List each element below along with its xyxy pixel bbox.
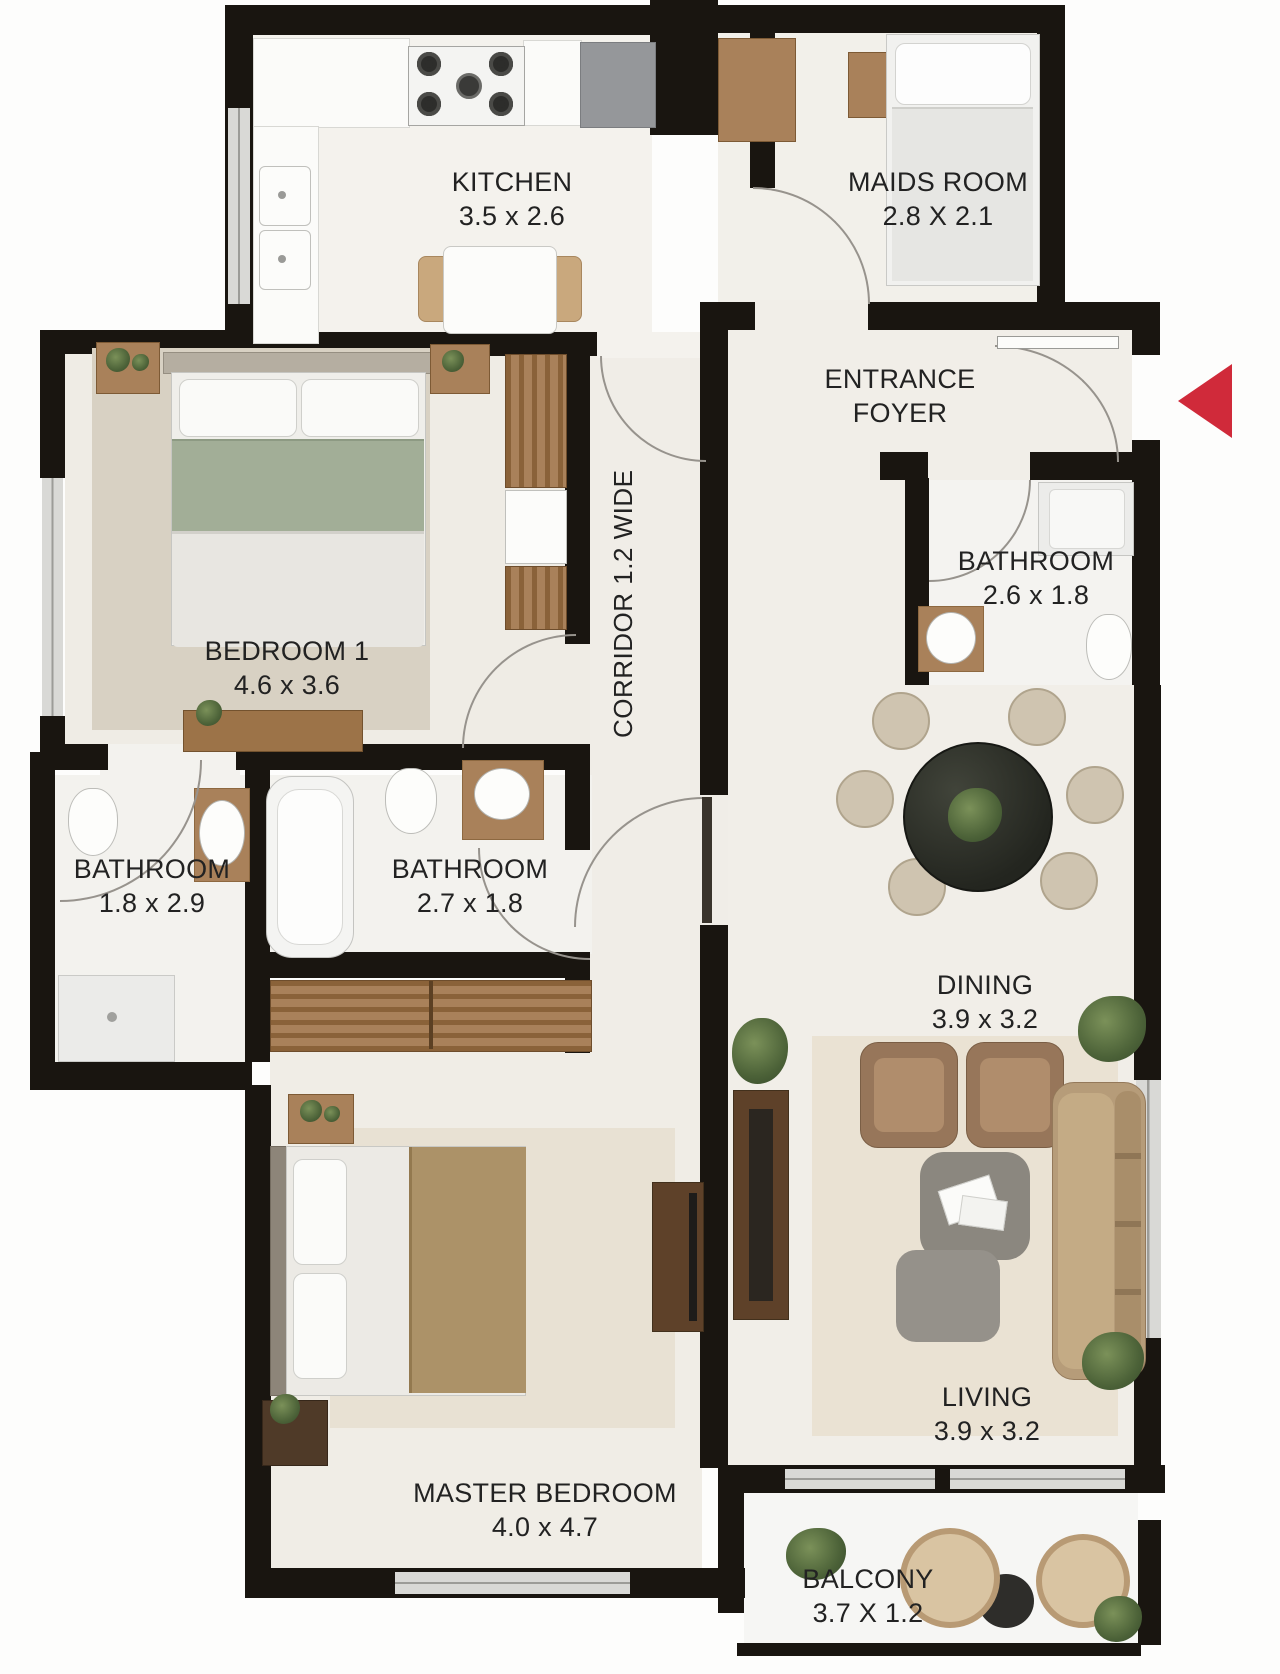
bath-mid-label: BATHROOM2.7 x 1.8 [392,852,548,920]
fridge [580,42,656,128]
master-blanket [409,1147,526,1393]
dining-chair [1066,766,1124,824]
window [228,108,250,304]
master-bedroom-label: MASTER BEDROOM4.0 x 4.7 [413,1476,677,1544]
coffee-table [920,1152,1030,1260]
bedroom1-nightstand [96,342,160,394]
wall [700,302,755,330]
tv [689,1193,697,1321]
wall [1037,5,1065,305]
dining-chair [872,692,930,750]
entry-opening [1132,355,1162,440]
bath-entry-sink [926,612,976,664]
bath-mid-toilet [385,768,437,834]
bath-mid-sink [474,768,530,820]
entrance-arrow [1178,364,1232,438]
floor-plan: KITCHEN3.5 x 2.6 MAIDS ROOM2.8 X 2.1 ENT… [0,0,1280,1674]
dining-label: DINING3.9 x 3.2 [932,968,1038,1036]
wall [30,1062,252,1090]
armchair [860,1042,958,1148]
master-wardrobe [270,980,592,1052]
maids-room-label: MAIDS ROOM2.8 X 2.1 [848,165,1028,233]
corridor-floor [590,356,702,1052]
wall [565,770,590,850]
dining-chair [836,770,894,828]
master-door-leaf [702,797,712,923]
pillow [301,379,419,437]
pillow [293,1273,347,1379]
wall [225,5,668,35]
pillow [293,1159,347,1265]
dining-chair [1040,852,1098,910]
kitchen-sink [259,230,311,290]
bath-entry-toilet [1086,614,1132,680]
burner-icon [417,52,441,76]
wall [565,332,590,644]
wall [30,752,55,1090]
kitchen-sink [259,166,311,226]
master-bed [286,1146,526,1396]
bedroom1-wardrobe-shelf [505,490,567,564]
tv [749,1109,773,1301]
wall [1132,478,1160,685]
maids-pillow [895,43,1031,105]
wall [700,925,728,1468]
stove-knob [456,73,482,99]
burner-icon [489,52,513,76]
balcony-label: BALCONY3.7 X 1.2 [802,1562,933,1630]
burner-icon [417,92,441,116]
window [950,1469,1125,1489]
wall [1132,440,1160,478]
living-label: LIVING3.9 x 3.2 [934,1380,1040,1448]
bedroom1-label: BEDROOM 14.6 x 3.6 [205,634,370,702]
dining-chair [1008,688,1066,746]
kitchen-counter-right [523,40,582,126]
kitchen-table [443,246,557,334]
bedroom1-wardrobe [505,354,567,488]
corridor-label: CORRIDOR 1.2 WIDE [608,469,639,738]
stove [408,46,525,126]
maids-desk [718,38,796,142]
burner-icon [489,92,513,116]
wall [1132,330,1160,355]
magazines [958,1195,1008,1231]
bedroom1-wardrobe [505,566,567,630]
entrance-foyer-label: ENTRANCEFOYER [825,362,976,430]
maids-bed [886,34,1040,286]
master-tv-unit [652,1182,704,1332]
wall [880,452,928,480]
wall [1037,302,1160,330]
bath-left-shower [58,975,175,1062]
ottoman [896,1250,1000,1342]
tv-console [733,1090,789,1320]
wall [737,1643,1141,1656]
wall [245,1085,271,1598]
bathtub [266,776,354,958]
window [395,1572,630,1594]
bath-entry-label: BATHROOM2.6 x 1.8 [958,544,1114,612]
pillow [179,379,297,437]
window [42,478,63,716]
armchair [966,1042,1064,1148]
kitchen-doorway-floor [597,332,700,358]
wall [1138,1520,1161,1645]
kitchen-counter-top [253,38,410,128]
wall [868,302,1038,330]
window [785,1469,935,1489]
entry-door-leaf [997,336,1119,349]
bedroom1-bed [171,372,426,646]
kitchen-label: KITCHEN3.5 x 2.6 [452,165,573,233]
bath-left-label: BATHROOM1.8 x 2.9 [74,852,230,920]
bedroom1-blanket [172,439,424,533]
bedroom1-duvet [172,531,424,647]
master-nightstand [288,1094,354,1144]
bedroom1-headboard [163,352,433,374]
maids-doorway-floor [755,300,868,334]
